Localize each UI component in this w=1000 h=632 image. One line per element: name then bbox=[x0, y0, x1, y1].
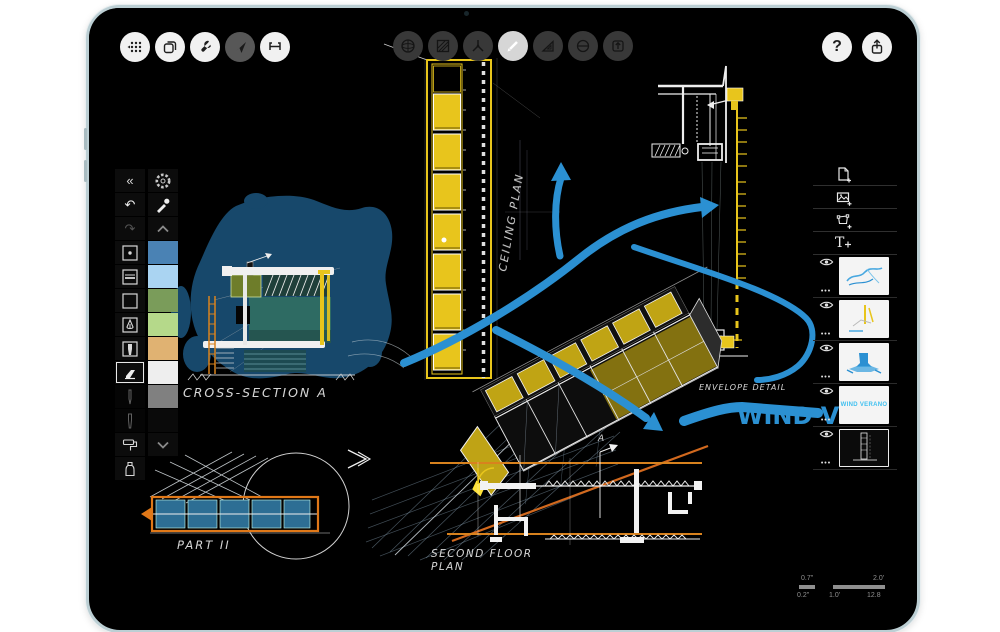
scale-top-left-value: 0.7" bbox=[801, 575, 813, 582]
layer-thumb-blue-squiggle bbox=[839, 257, 889, 295]
tool-blank[interactable] bbox=[115, 289, 145, 312]
export-tool-button[interactable] bbox=[603, 31, 633, 61]
protractor-icon bbox=[574, 37, 592, 55]
layer-visibility-eye-icon[interactable] bbox=[819, 429, 834, 439]
page-background: CEILING PLAN CROSS-SECTION A PART II SEC… bbox=[0, 0, 1000, 632]
scale-bar-small bbox=[799, 585, 815, 589]
help-icon: ? bbox=[832, 38, 842, 56]
layer-thumb-wind-verano-text: WIND VERANO bbox=[841, 402, 888, 408]
tool-spray-bottle[interactable] bbox=[115, 457, 145, 480]
tool-line-weight[interactable] bbox=[115, 265, 145, 288]
line-weight-icon bbox=[120, 267, 140, 287]
scale-indicator: 0.7" 2.0' 0.2" 1.0' 12.8 bbox=[793, 574, 897, 604]
layer-visibility-eye-icon[interactable] bbox=[819, 343, 834, 353]
add-shape-button[interactable] bbox=[813, 209, 897, 232]
label-section-marker: A bbox=[597, 434, 604, 444]
settings-button[interactable] bbox=[190, 32, 220, 62]
color-swatch[interactable] bbox=[148, 385, 178, 408]
chevron-down-icon bbox=[153, 435, 173, 455]
export-stamp-icon bbox=[609, 37, 627, 55]
axes-tool-button[interactable] bbox=[463, 31, 493, 61]
layer-thumbnail[interactable] bbox=[839, 343, 889, 381]
layer-row[interactable]: ••• bbox=[813, 298, 897, 341]
tool-fine-liner[interactable] bbox=[115, 409, 145, 432]
app-screen: CEILING PLAN CROSS-SECTION A PART II SEC… bbox=[89, 8, 911, 624]
apps-grid-icon bbox=[126, 38, 144, 56]
tool-pencil[interactable] bbox=[115, 385, 145, 408]
layer-menu-button[interactable]: ••• bbox=[821, 375, 831, 381]
tool-dot-brush[interactable] bbox=[115, 241, 145, 264]
color-wheel-icon bbox=[153, 171, 173, 191]
hatch-fill-icon bbox=[434, 37, 452, 55]
drawing-canvas[interactable]: CEILING PLAN CROSS-SECTION A PART II SEC… bbox=[89, 8, 911, 624]
blank-swatch-icon bbox=[120, 291, 140, 311]
add-text-button[interactable]: T bbox=[813, 232, 897, 255]
cursor-arrow-icon bbox=[231, 38, 249, 56]
palette-collapse-button[interactable]: « bbox=[115, 169, 145, 192]
pen-nib-icon bbox=[120, 315, 140, 335]
color-swatch[interactable] bbox=[148, 265, 178, 288]
add-page-button[interactable] bbox=[813, 163, 897, 186]
measure-button[interactable] bbox=[260, 32, 290, 62]
wrench-icon bbox=[196, 38, 214, 56]
label-second-floor-1: SECOND FLOOR bbox=[431, 548, 533, 560]
protractor-tool-button[interactable] bbox=[568, 31, 598, 61]
swatch-scroll-up[interactable] bbox=[148, 217, 178, 240]
fine-liner-icon bbox=[120, 411, 140, 431]
add-text-icon: T bbox=[835, 235, 844, 251]
apps-grid-button[interactable] bbox=[120, 32, 150, 62]
eraser-icon bbox=[120, 363, 140, 383]
ipad-frame: CEILING PLAN CROSS-SECTION A PART II SEC… bbox=[86, 5, 920, 632]
share-button[interactable] bbox=[862, 32, 892, 62]
tool-paint-roller[interactable] bbox=[115, 433, 145, 456]
axes-3d-icon bbox=[469, 37, 487, 55]
layer-row[interactable]: ••• bbox=[813, 255, 897, 298]
add-image-button[interactable] bbox=[813, 186, 897, 209]
layer-thumbnail[interactable]: WIND VERANO bbox=[839, 386, 889, 424]
eyedropper-icon bbox=[153, 195, 173, 215]
layer-visibility-eye-icon[interactable] bbox=[819, 300, 834, 310]
scale-bar-large bbox=[833, 585, 885, 589]
layer-row[interactable]: ••• WIND VERANO bbox=[813, 384, 897, 427]
volume-button bbox=[84, 160, 87, 182]
layer-thumb-yellow-sketch bbox=[839, 300, 889, 338]
color-swatch[interactable] bbox=[148, 241, 178, 264]
dot-brush-icon bbox=[120, 243, 140, 263]
pen-icon bbox=[504, 37, 522, 55]
sphere-icon bbox=[399, 37, 417, 55]
label-cross-section: CROSS-SECTION A bbox=[183, 385, 328, 400]
eyedropper-button[interactable] bbox=[148, 193, 178, 216]
swatch-scroll-down[interactable] bbox=[148, 433, 178, 456]
layer-menu-button[interactable]: ••• bbox=[821, 289, 831, 295]
color-wheel-button[interactable] bbox=[148, 169, 178, 192]
layer-thumb-dark-drawing bbox=[839, 429, 889, 467]
color-swatch[interactable] bbox=[148, 409, 178, 432]
front-camera bbox=[464, 11, 469, 16]
set-square-icon bbox=[539, 37, 557, 55]
label-part: PART II bbox=[177, 538, 231, 552]
chevron-up-icon bbox=[153, 219, 173, 239]
help-button[interactable]: ? bbox=[822, 32, 852, 62]
scale-top-right-value: 2.0' bbox=[873, 575, 884, 582]
pages-button[interactable] bbox=[155, 32, 185, 62]
pencil-icon bbox=[120, 387, 140, 407]
tool-marker[interactable] bbox=[115, 337, 145, 360]
share-icon bbox=[868, 38, 886, 56]
redo-button[interactable]: ↷ bbox=[115, 217, 145, 240]
spray-bottle-icon bbox=[120, 459, 140, 479]
plus-icon bbox=[844, 238, 852, 248]
undo-button[interactable]: ↶ bbox=[115, 193, 145, 216]
label-ceiling-plan: CEILING PLAN bbox=[496, 172, 526, 273]
add-page-icon bbox=[835, 166, 852, 183]
navigate-button[interactable] bbox=[225, 32, 255, 62]
pages-icon bbox=[161, 38, 179, 56]
color-swatch[interactable] bbox=[148, 337, 178, 360]
add-image-icon bbox=[835, 189, 852, 206]
paint-roller-icon bbox=[120, 435, 140, 455]
marker-icon bbox=[120, 339, 140, 359]
layer-visibility-eye-icon[interactable] bbox=[819, 386, 834, 396]
part-detail-drawing bbox=[141, 450, 370, 559]
label-envelope-detail: ENVELOPE DETAIL bbox=[699, 383, 786, 392]
label-second-floor-2: PLAN bbox=[431, 561, 464, 573]
layer-visibility-eye-icon[interactable] bbox=[819, 257, 834, 267]
layer-menu-button[interactable]: ••• bbox=[821, 332, 831, 338]
layer-thumbnail[interactable] bbox=[839, 429, 889, 467]
pen-tool-button[interactable] bbox=[498, 31, 528, 61]
set-square-tool-button[interactable] bbox=[533, 31, 563, 61]
color-swatch[interactable] bbox=[148, 361, 178, 384]
sphere-tool-button[interactable] bbox=[393, 31, 423, 61]
layer-row[interactable]: ••• bbox=[813, 341, 897, 384]
layer-thumb-blue-object bbox=[839, 343, 889, 381]
color-swatch[interactable] bbox=[148, 289, 178, 312]
layer-menu-button[interactable]: ••• bbox=[821, 461, 831, 467]
tool-pen-nib[interactable] bbox=[115, 313, 145, 336]
layer-thumbnail[interactable] bbox=[839, 300, 889, 338]
add-shape-icon bbox=[835, 212, 852, 229]
layer-thumbnail[interactable] bbox=[839, 257, 889, 295]
layers-panel: T ••• bbox=[813, 163, 897, 470]
tool-eraser[interactable] bbox=[115, 361, 145, 384]
layer-menu-button[interactable]: ••• bbox=[821, 418, 831, 424]
layer-row-selected[interactable]: ••• bbox=[813, 427, 897, 470]
measure-icon bbox=[266, 38, 284, 56]
hatch-tool-button[interactable] bbox=[428, 31, 458, 61]
scale-bottom-right-value: 12.8 bbox=[867, 592, 881, 599]
scale-bottom-left-value: 0.2" bbox=[797, 592, 809, 599]
color-swatch[interactable] bbox=[148, 313, 178, 336]
volume-button bbox=[84, 128, 87, 150]
scale-bottom-mid-value: 1.0' bbox=[829, 592, 840, 599]
